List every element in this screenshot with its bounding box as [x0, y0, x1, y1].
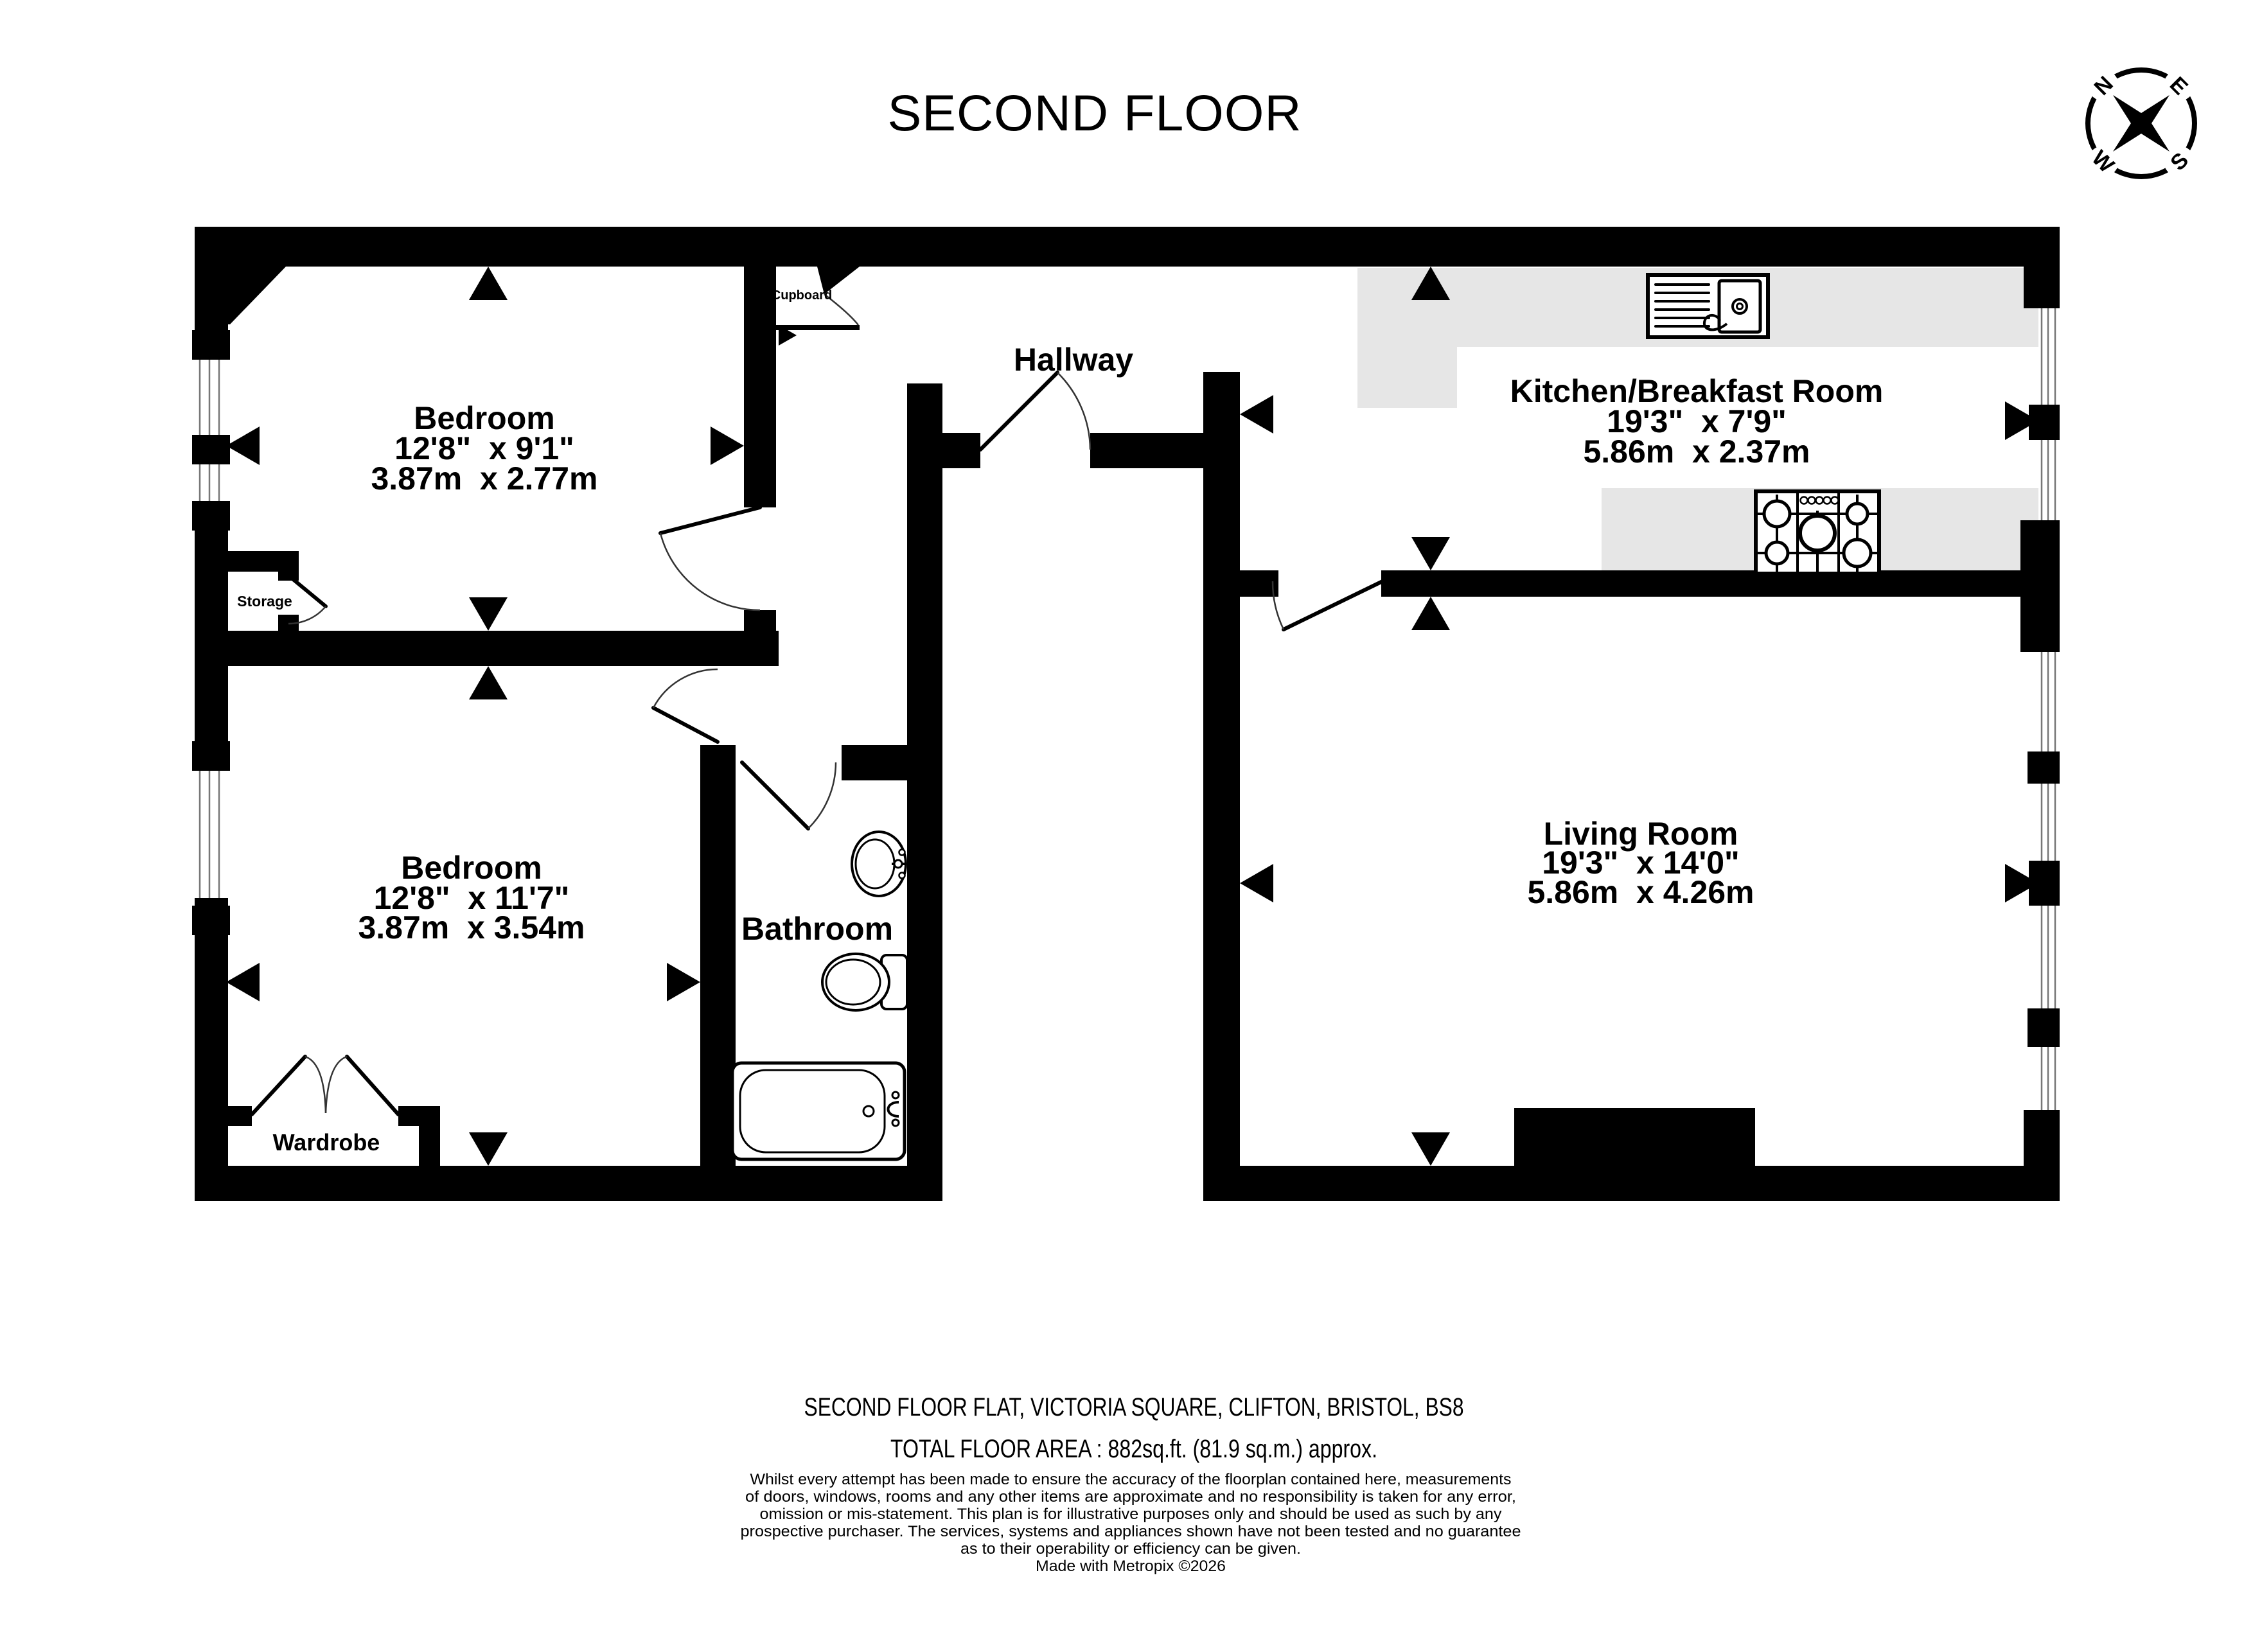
- wall-bedroom1-right-upper: [744, 267, 776, 507]
- wall-left-wing-east: [907, 383, 942, 1201]
- bedroom1-metric: 3.87m x 2.77m: [371, 461, 597, 496]
- bedroom1-arrow-left-icon: [226, 426, 260, 465]
- kitchen-metric: 5.86m x 2.37m: [1583, 434, 1810, 470]
- page-title: SECOND FLOOR: [888, 84, 1302, 141]
- bedroom1-door: [660, 507, 760, 610]
- hob-icon: [1756, 491, 1879, 574]
- wall-bedroom2-right: [700, 745, 736, 1201]
- living-arrow-left-icon: [1240, 864, 1273, 902]
- kitchen-arrow-down-icon: [1411, 537, 1450, 570]
- footer-credit: Made with Metropix ©2026: [1036, 1558, 1226, 1575]
- kitchen-label: Kitchen/Breakfast Room 19'3" x 7'9" 5.86…: [1510, 373, 1884, 470]
- wall-wardrobe-stub-left: [226, 1106, 252, 1126]
- wardrobe-doors: [252, 1057, 398, 1114]
- living-arrow-up-icon: [1411, 597, 1450, 630]
- wall-hallway-south-a: [907, 433, 980, 468]
- wall-block-left-4: [192, 906, 230, 935]
- bedroom2-arrow-up-icon: [469, 666, 508, 699]
- entrance-door: [980, 373, 1090, 450]
- living-room-door: [1273, 581, 1383, 629]
- wall-block-left-1: [192, 330, 230, 360]
- floorplan-page: SECOND FLOOR N E S W: [0, 0, 2253, 1652]
- wall-block-left-2: [192, 501, 230, 531]
- compass-icon: N E S W: [2087, 70, 2195, 178]
- wall-block-left-3: [192, 741, 230, 771]
- wall-exterior-bottom-left-wing: [195, 1166, 942, 1201]
- footer-disclaimer-line-5: as to their operability or efficiency ca…: [960, 1540, 1301, 1558]
- bedroom1-arrow-up-icon: [469, 267, 508, 300]
- cupboard-label: Cupboard: [772, 288, 832, 303]
- bathroom-door: [742, 762, 836, 829]
- wall-right-wing-west: [1203, 372, 1240, 1201]
- bedroom1-arrow-right-icon: [711, 426, 744, 465]
- storage-label: Storage: [237, 593, 292, 610]
- basin-icon: [852, 832, 906, 896]
- wall-corner-top-right: [2024, 227, 2060, 308]
- wall-corner-bottom-right: [2024, 1110, 2060, 1168]
- wall-chunk-right-2: [2028, 1008, 2060, 1047]
- footer-disclaimer-line-4: prospective purchaser. The services, sys…: [741, 1523, 1521, 1540]
- bedroom2-arrow-down-icon: [469, 1132, 508, 1166]
- wall-exterior-bottom-right-wing: [1203, 1166, 2060, 1201]
- wall-wardrobe-stub-right: [398, 1106, 440, 1126]
- bedroom2-door: [653, 669, 718, 742]
- floorplan-canvas: SECOND FLOOR N E S W: [0, 0, 2253, 1652]
- footer-disclaimer-line-2: of doors, windows, rooms and any other i…: [745, 1488, 1516, 1506]
- bedroom1-label: Bedroom 12'8" x 9'1" 3.87m x 2.77m: [371, 400, 597, 496]
- footer-disclaimer-line-1: Whilst every attempt has been made to en…: [750, 1471, 1512, 1488]
- wall-storage-top: [226, 551, 299, 572]
- compass-star-icon: [2113, 95, 2169, 152]
- footer: SECOND FLOOR FLAT, VICTORIA SQUARE, CLIF…: [741, 1393, 1521, 1575]
- room-labels: Bedroom 12'8" x 9'1" 3.87m x 2.77m Bedro…: [237, 288, 1883, 1156]
- footer-disclaimer-line-3: omission or mis-statement. This plan is …: [760, 1506, 1502, 1523]
- footer-total-area: TOTAL FLOOR AREA : 882sq.ft. (81.9 sq.m.…: [890, 1435, 1377, 1463]
- bedroom2-label: Bedroom 12'8" x 11'7" 3.87m x 3.54m: [358, 850, 585, 945]
- wall-block-left-mid: [192, 435, 230, 464]
- hallway-label: Hallway: [1014, 342, 1133, 378]
- living-room-label: Living Room 19'3" x 14'0" 5.86m x 4.26m: [1527, 816, 1754, 910]
- bedroom2-arrow-left-icon: [226, 963, 260, 1001]
- chimney-breast: [1514, 1108, 1755, 1167]
- kitchen-arrow-left-icon: [1240, 395, 1273, 434]
- wall-divider-junction-block: [2020, 520, 2060, 652]
- wall-wardrobe-right: [419, 1126, 440, 1167]
- bathtub-icon: [732, 1063, 905, 1159]
- bedroom2-metric: 3.87m x 3.54m: [358, 909, 585, 945]
- wall-bedroom1-bottom: [226, 631, 779, 666]
- kitchen-sink-icon: [1648, 275, 1768, 337]
- living-arrow-down-icon: [1411, 1132, 1450, 1166]
- bathroom-label: Bathroom: [741, 911, 893, 947]
- footer-address: SECOND FLOOR FLAT, VICTORIA SQUARE, CLIF…: [804, 1393, 1464, 1421]
- living-metric: 5.86m x 4.26m: [1527, 874, 1754, 910]
- wall-exterior-top: [195, 227, 2060, 267]
- wardrobe-label: Wardrobe: [273, 1129, 380, 1156]
- wall-chunk-right-1: [2028, 751, 2060, 784]
- wall-bathroom-top-stub: [842, 745, 907, 780]
- wall-kitchen-living-divider: [1381, 570, 2038, 597]
- toilet-icon: [822, 954, 907, 1010]
- bedroom1-arrow-down-icon: [469, 597, 508, 631]
- bedroom2-arrow-right-icon: [667, 963, 700, 1001]
